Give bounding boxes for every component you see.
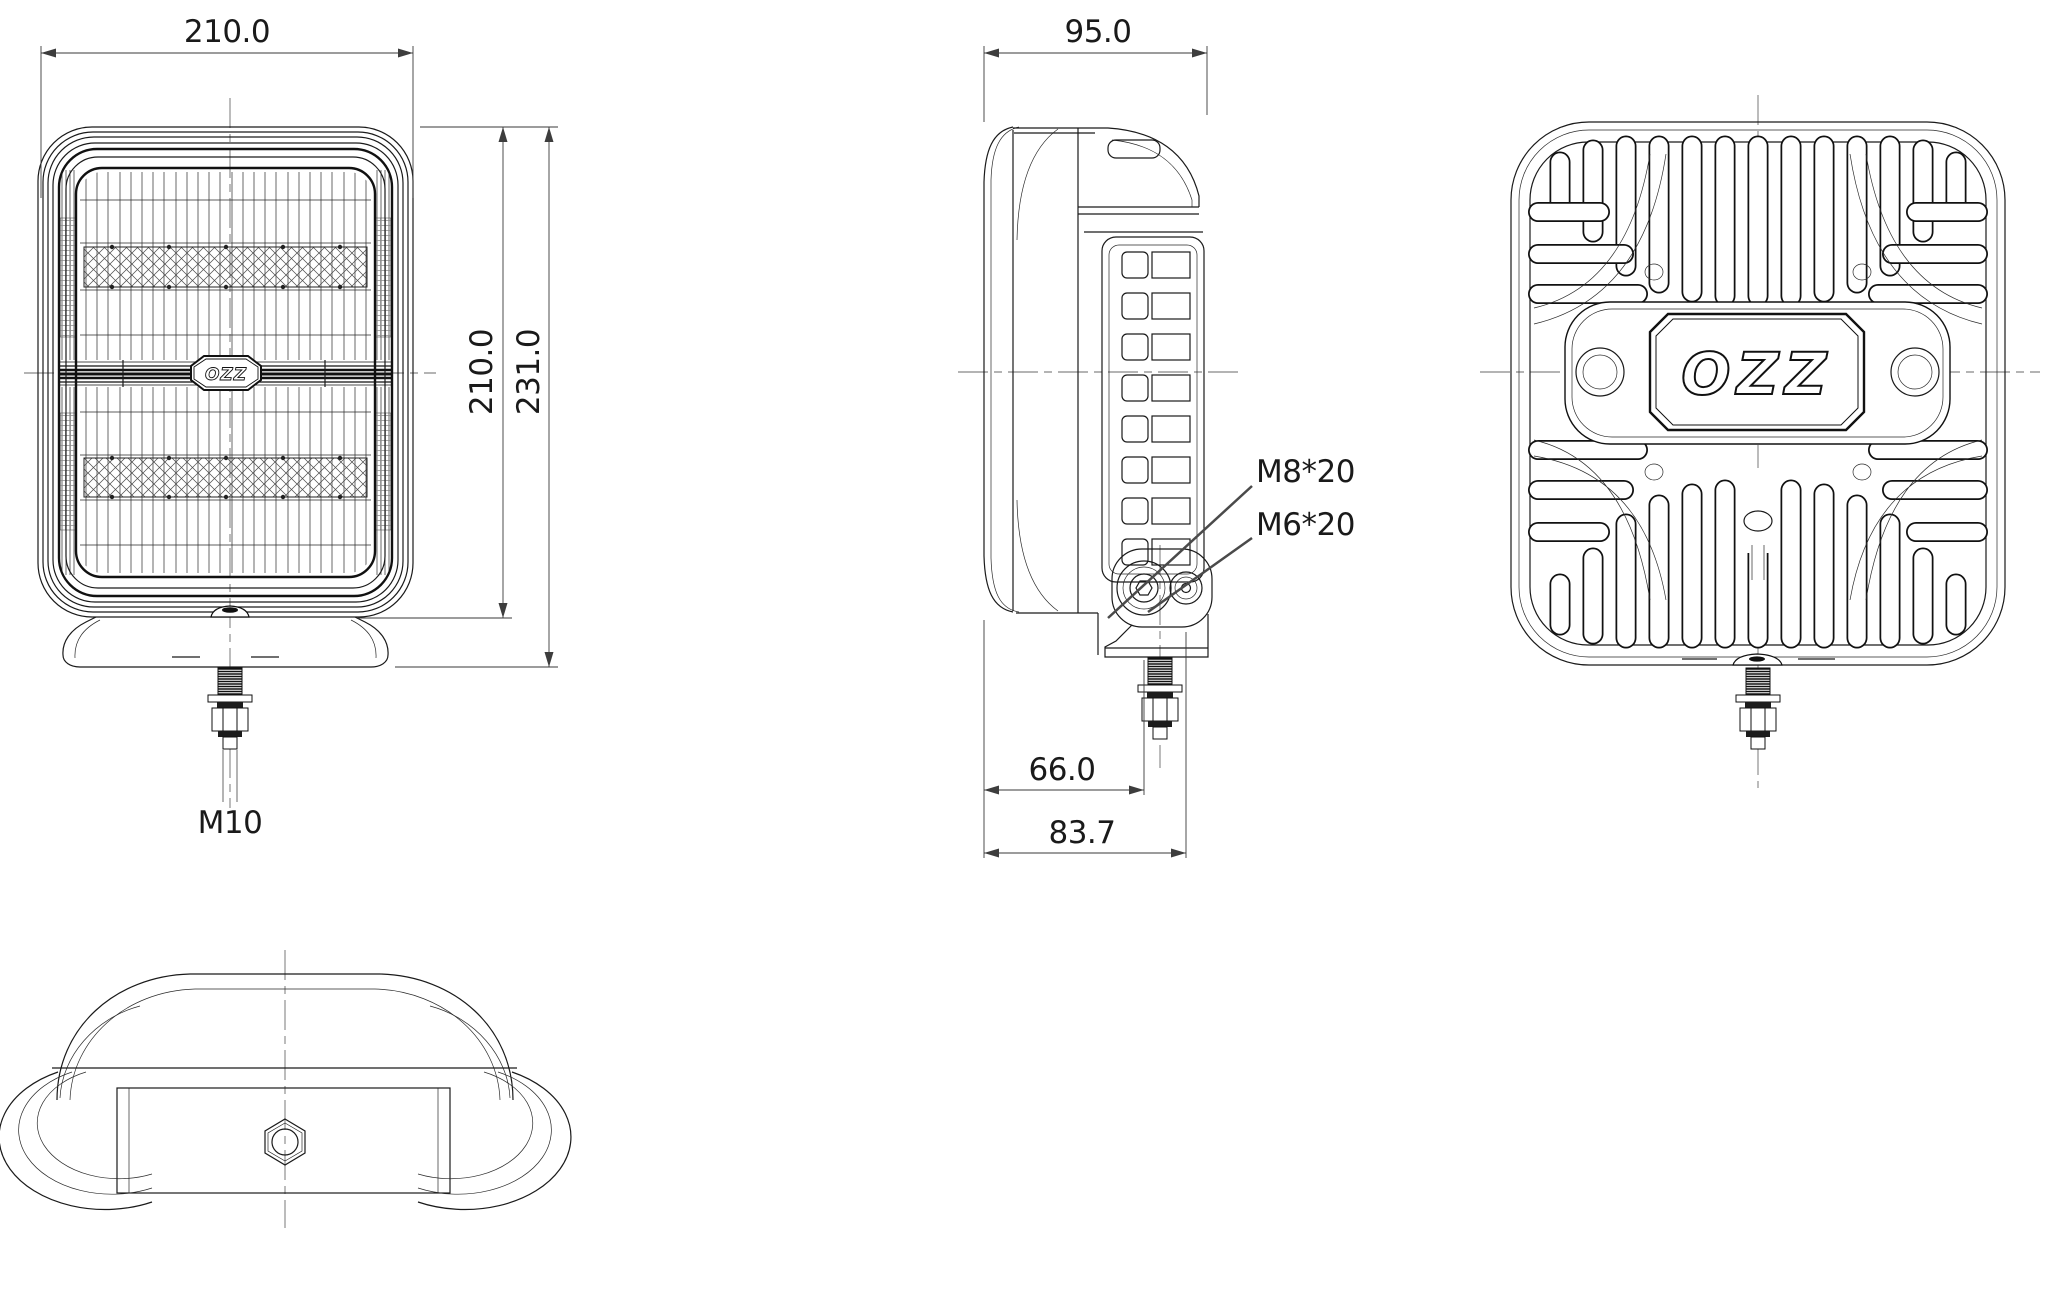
- front-reflector-band-upper: [84, 247, 367, 287]
- side-lens-profile: [984, 127, 1058, 612]
- front-logo-badge: OZZ: [191, 356, 261, 390]
- front-dim-width-label: 210.0: [184, 14, 270, 50]
- side-bottom-foot: [1105, 614, 1208, 657]
- bottom-lens-silhouette: [52, 974, 517, 1100]
- side-dim-66-label: 66.0: [1028, 752, 1095, 788]
- side-view: M8*20 M6*20 95.0 66.0 83.7: [984, 14, 1355, 858]
- drawing-svg: OZZ 210.0: [0, 0, 2064, 1295]
- front-right-hatch-lower: [375, 413, 392, 530]
- bottom-right-bracket-arm: [418, 1072, 571, 1210]
- side-dim-depth: 95.0: [984, 14, 1207, 122]
- technical-drawing-canvas: OZZ 210.0: [0, 0, 2064, 1295]
- front-view: OZZ 210.0: [38, 14, 558, 841]
- front-mounting-bracket: [63, 606, 388, 667]
- side-bolt-callouts: M8*20 M6*20: [1108, 454, 1355, 618]
- side-heatsink-fins: [1102, 237, 1204, 582]
- side-callout-m6-label: M6*20: [1256, 507, 1355, 543]
- bottom-view: [0, 974, 571, 1210]
- front-dim-height-lens-label: 210.0: [464, 329, 500, 415]
- side-top-bracket-hook: [1108, 128, 1199, 207]
- side-dim-depth-label: 95.0: [1064, 14, 1131, 50]
- front-right-hatch-upper: [375, 218, 392, 337]
- back-logo-text: OZZ: [1681, 340, 1832, 408]
- m8-hex-socket: [1136, 581, 1152, 595]
- front-left-hatch-lower: [59, 413, 76, 530]
- back-view: OZZ: [1511, 122, 2005, 749]
- bottom-bracket-band: [117, 1088, 450, 1193]
- side-mount-bolt: [1138, 658, 1182, 739]
- front-mount-bolt: [208, 668, 252, 749]
- front-reflector-band-lower: [84, 458, 367, 497]
- side-body: [1013, 128, 1203, 655]
- front-dim-height-total-label: 231.0: [511, 329, 547, 415]
- back-logo-badge: OZZ: [1650, 314, 1864, 430]
- front-logo-text: OZZ: [205, 365, 247, 385]
- back-top-fins: [1560, 146, 1956, 296]
- back-mount-bolt: [1736, 668, 1780, 749]
- side-callout-m8-label: M8*20: [1256, 454, 1355, 490]
- front-left-hatch-upper: [59, 218, 76, 337]
- front-thread-label: M10: [198, 805, 263, 841]
- side-dim-83-label: 83.7: [1048, 815, 1115, 851]
